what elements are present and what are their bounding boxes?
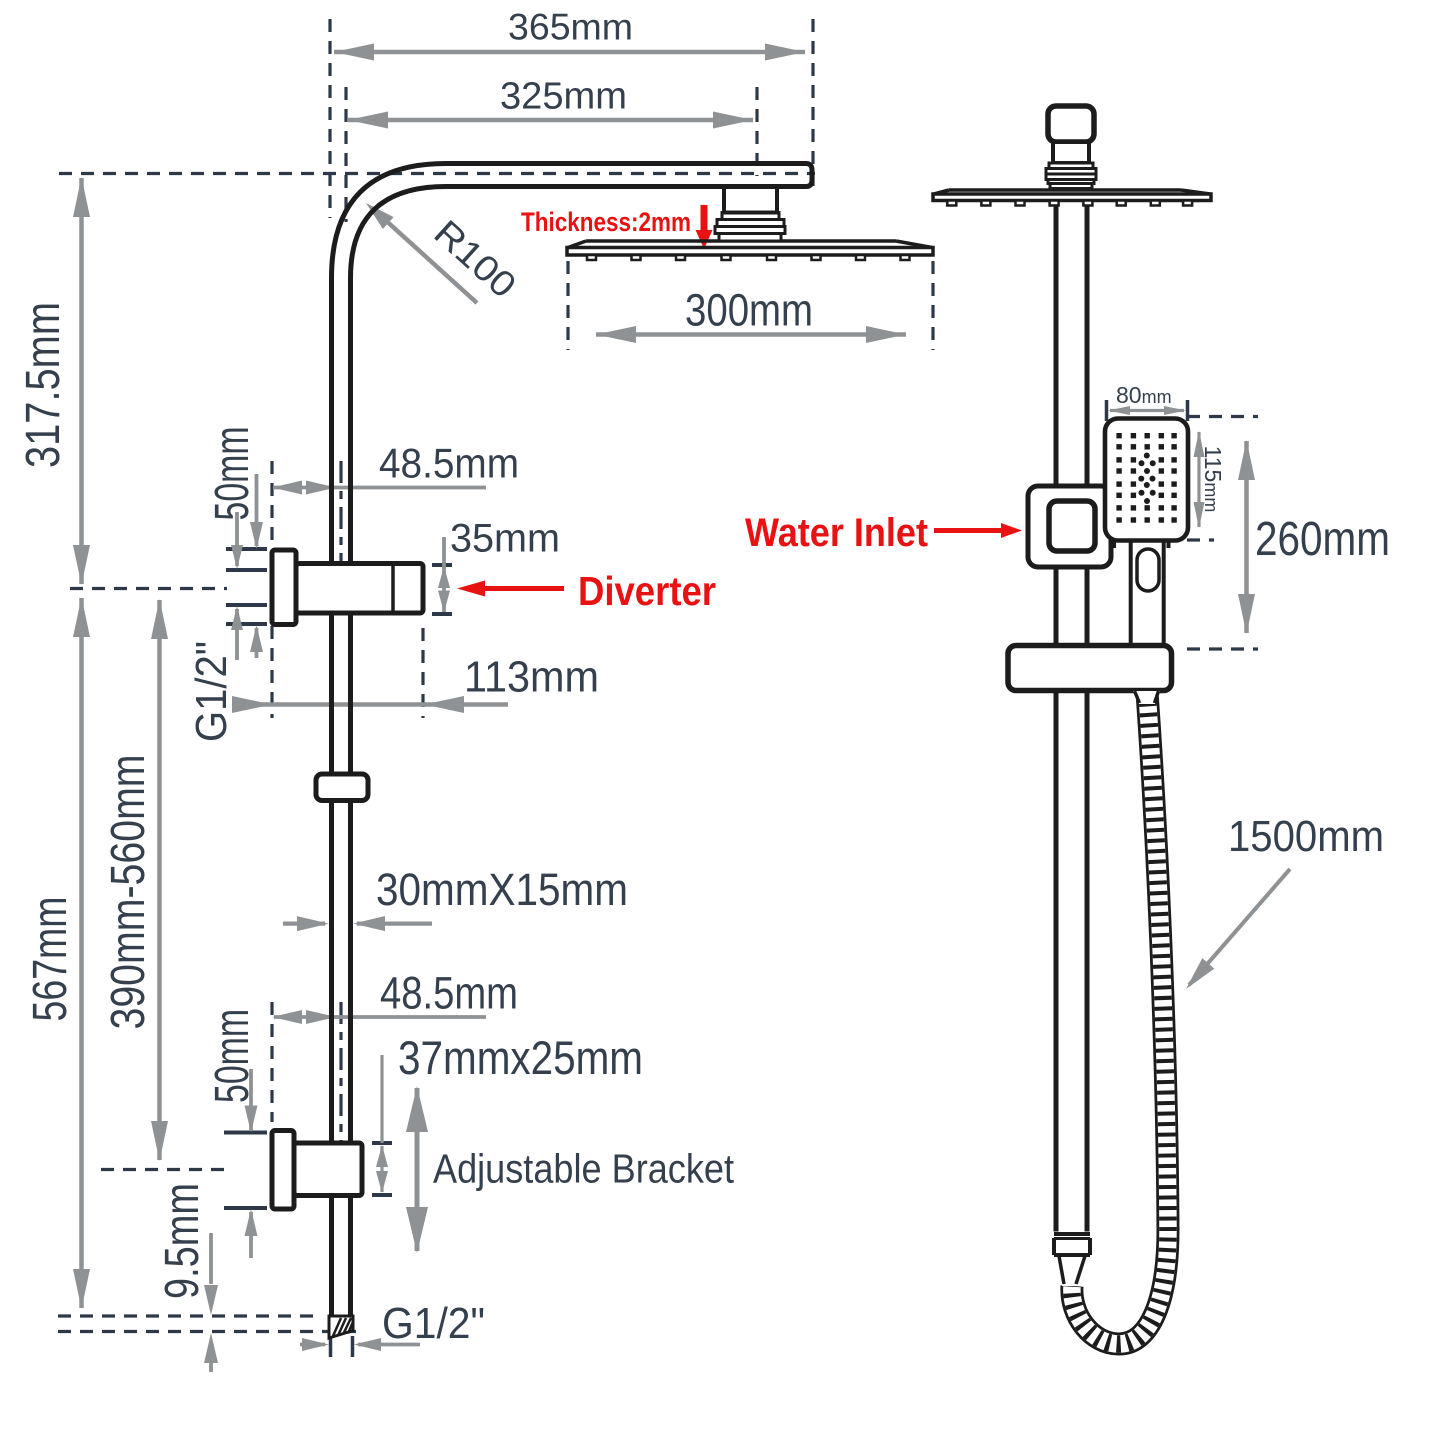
svg-text:Adjustable Bracket: Adjustable Bracket [433, 1146, 735, 1192]
svg-text:9.5mm: 9.5mm [156, 1183, 209, 1299]
svg-text:390mm-560mm: 390mm-560mm [102, 755, 155, 1030]
svg-text:300mm: 300mm [685, 285, 813, 336]
svg-text:30mmX15mm: 30mmX15mm [376, 864, 628, 915]
svg-text:50mm: 50mm [206, 427, 259, 521]
svg-text:48.5mm: 48.5mm [380, 968, 518, 1019]
svg-text:365mm: 365mm [508, 7, 633, 48]
svg-text:50mm: 50mm [206, 1009, 259, 1103]
svg-text:35mm: 35mm [450, 517, 560, 561]
svg-text:260mm: 260mm [1255, 513, 1390, 566]
svg-text:G1/2": G1/2" [382, 1299, 485, 1348]
svg-text:48.5mm: 48.5mm [379, 440, 519, 487]
svg-text:113mm: 113mm [464, 653, 599, 702]
svg-text:Thickness:2mm: Thickness:2mm [521, 207, 691, 237]
svg-text:317.5mm: 317.5mm [17, 302, 70, 468]
svg-text:Diverter: Diverter [578, 568, 716, 614]
svg-text:325mm: 325mm [500, 76, 627, 118]
svg-text:567mm: 567mm [24, 897, 77, 1022]
svg-text:37mmx25mm: 37mmx25mm [398, 1031, 643, 1084]
svg-text:G1/2": G1/2" [187, 641, 236, 742]
svg-text:Water Inlet: Water Inlet [745, 511, 928, 555]
svg-text:1500mm: 1500mm [1228, 812, 1384, 861]
